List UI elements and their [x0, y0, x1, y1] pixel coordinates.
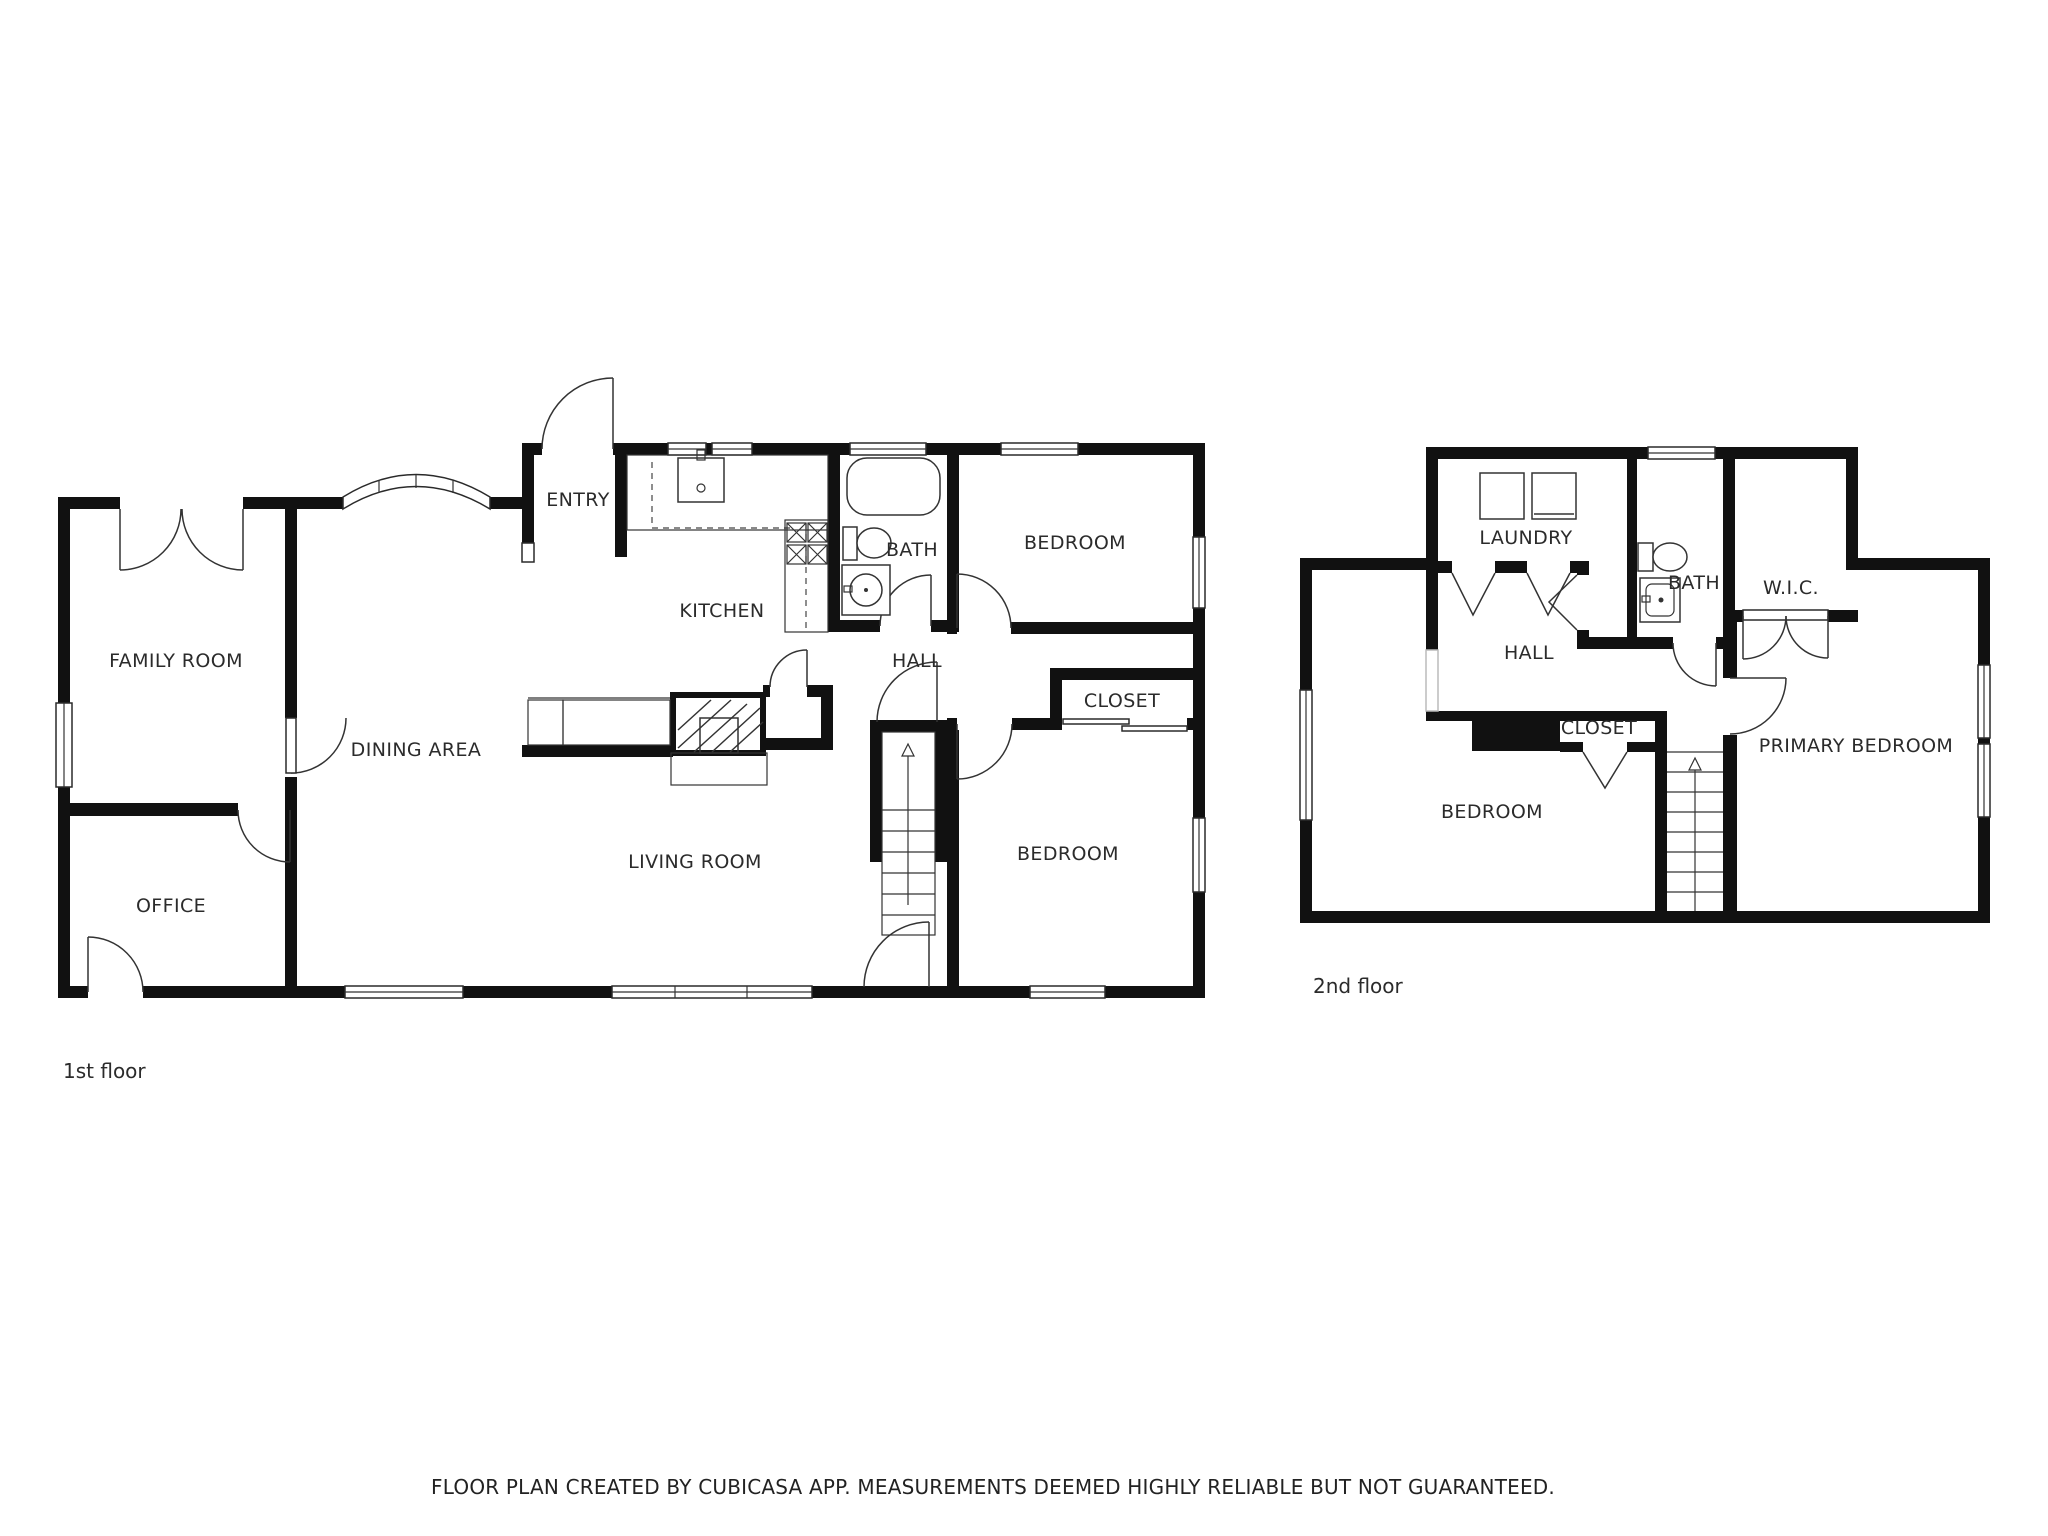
room-label-bedroom-top: BEDROOM: [1024, 532, 1126, 554]
up-arrow-icon: [902, 744, 914, 756]
stove-burners: [787, 523, 827, 564]
staircase-up: [1667, 752, 1723, 911]
fireplace: [671, 695, 767, 785]
floor-plan-second-floor: LAUNDRY BATH W.I.C. HALL CLOSET PRIMARY …: [1300, 447, 1990, 998]
bathroom-sink: [842, 565, 890, 615]
dining-door: [286, 718, 346, 773]
room-label-dining-area: DINING AREA: [351, 739, 482, 761]
primary-bedroom-door: [1730, 678, 1786, 734]
room-label-hall: HALL: [892, 650, 942, 672]
kitchen-sink: [678, 450, 724, 502]
office-door: [238, 810, 290, 862]
caption-first-floor: 1st floor: [63, 1059, 146, 1083]
room-label-hall2: HALL: [1504, 642, 1554, 664]
room-label-entry: ENTRY: [546, 489, 609, 511]
sideboard-cabinets: [528, 698, 670, 745]
linen-closet-bifold-door: [1549, 575, 1577, 630]
walls-second-floor: [1300, 447, 1990, 923]
room-label-bedroom2: BEDROOM: [1441, 801, 1543, 823]
laundry-bifold-doors: [1452, 573, 1570, 615]
toilet: [843, 527, 891, 560]
dryer: [1532, 473, 1576, 519]
bathtub: [847, 458, 940, 515]
stair-door: [864, 922, 929, 987]
floor-plan-canvas: ENTRY KITCHEN BATH BEDROOM HALL CLOSET F…: [0, 0, 2048, 1536]
bedroom-door: [957, 574, 1011, 628]
walls-first-floor: [58, 443, 1205, 998]
bedroom-hall-opening: [1426, 650, 1438, 711]
washer: [1480, 473, 1524, 519]
floor-plan-page: ENTRY KITCHEN BATH BEDROOM HALL CLOSET F…: [0, 0, 2048, 1536]
room-label-family-room: FAMILY ROOM: [109, 650, 243, 672]
floor-plan-first-floor: ENTRY KITCHEN BATH BEDROOM HALL CLOSET F…: [56, 378, 1205, 1083]
french-doors: [120, 509, 243, 570]
toilet: [1638, 543, 1687, 571]
doors-first-floor: [88, 378, 1187, 992]
office-exterior-door: [88, 937, 143, 992]
entry-closet-door: [770, 650, 807, 687]
room-label-kitchen: KITCHEN: [679, 600, 764, 622]
room-label-bath2: BATH: [1668, 572, 1720, 594]
room-label-closet2: CLOSET: [1561, 717, 1637, 739]
room-label-closet: CLOSET: [1084, 690, 1160, 712]
room-label-laundry: LAUNDRY: [1479, 527, 1572, 549]
bath2-door: [1673, 643, 1716, 686]
closet-bifold-door: [1583, 752, 1627, 788]
chimney-mass: [1472, 711, 1560, 751]
room-label-wic: W.I.C.: [1763, 577, 1819, 599]
sliding-closet-door: [1063, 719, 1187, 731]
room-label-office: OFFICE: [136, 895, 206, 917]
entry-door: [542, 378, 613, 449]
bedroom2-door: [957, 724, 1012, 779]
up-arrow-icon: [1689, 758, 1701, 770]
footer-disclaimer: FLOOR PLAN CREATED BY CUBICASA APP. MEAS…: [431, 1475, 1555, 1499]
staircase-up: [882, 732, 935, 935]
windows-second-floor: [1300, 447, 1990, 820]
caption-second-floor: 2nd floor: [1313, 974, 1404, 998]
wic-double-doors: [1743, 610, 1828, 659]
room-label-primary-bedroom: PRIMARY BEDROOM: [1759, 735, 1953, 757]
room-label-bath: BATH: [886, 539, 938, 561]
room-label-bedroom-bottom: BEDROOM: [1017, 843, 1119, 865]
room-label-living-room: LIVING ROOM: [628, 851, 762, 873]
